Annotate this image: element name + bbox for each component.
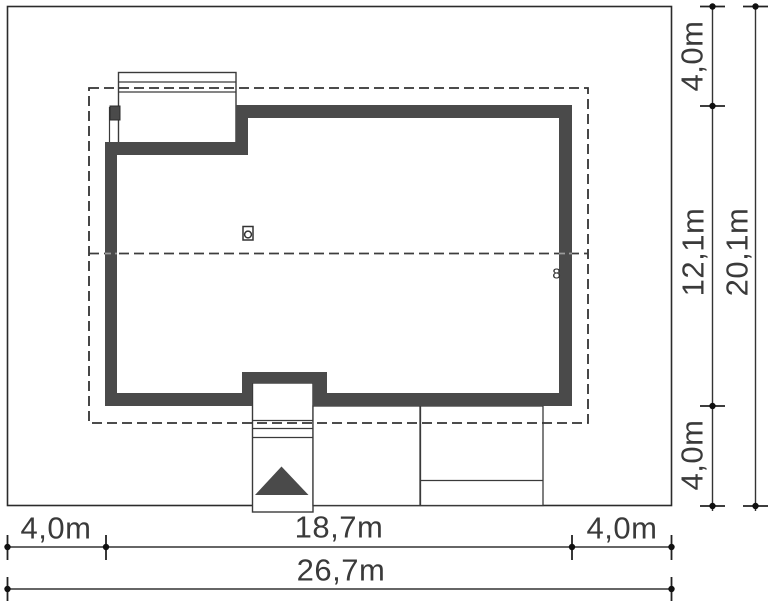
wall-bottom-right bbox=[313, 393, 572, 406]
dim-right-total-depth: 20,1m bbox=[722, 208, 753, 297]
wall-notch-top bbox=[105, 142, 248, 155]
terrace-right-outline bbox=[421, 406, 544, 506]
dim-right-top-setback: 4,0m bbox=[677, 21, 708, 92]
terrace-left bbox=[313, 406, 420, 506]
dim-bottom-right-setback: 4,0m bbox=[587, 513, 658, 544]
wall-recess-left bbox=[242, 372, 252, 406]
dim-bottom-left-setback: 4,0m bbox=[21, 513, 92, 544]
wall-right bbox=[559, 105, 572, 406]
terrace-right bbox=[421, 406, 544, 506]
wall-marker-label: 8 bbox=[552, 266, 560, 283]
chimney-vent-icon bbox=[243, 227, 253, 241]
dim-right-bottom-setback: 4,0m bbox=[677, 420, 708, 491]
annex-box bbox=[110, 73, 237, 144]
wall-left bbox=[105, 142, 117, 406]
wall-stub bbox=[110, 106, 120, 120]
wall-bottom-left bbox=[105, 393, 252, 406]
wall-top bbox=[236, 105, 572, 118]
chimney-flue bbox=[245, 231, 252, 238]
annex-outline bbox=[119, 73, 237, 144]
dim-bottom-total-width: 26,7m bbox=[297, 555, 386, 586]
dim-bottom-building-width: 18,7m bbox=[295, 512, 384, 543]
dim-right-building-depth: 12,1m bbox=[678, 208, 709, 297]
wall-recess-right bbox=[313, 372, 327, 406]
site-plan-canvas: 8 4,0m 18,7m 4,0m 26,7m 4,0m 12,1m 4,0m … bbox=[0, 0, 770, 607]
